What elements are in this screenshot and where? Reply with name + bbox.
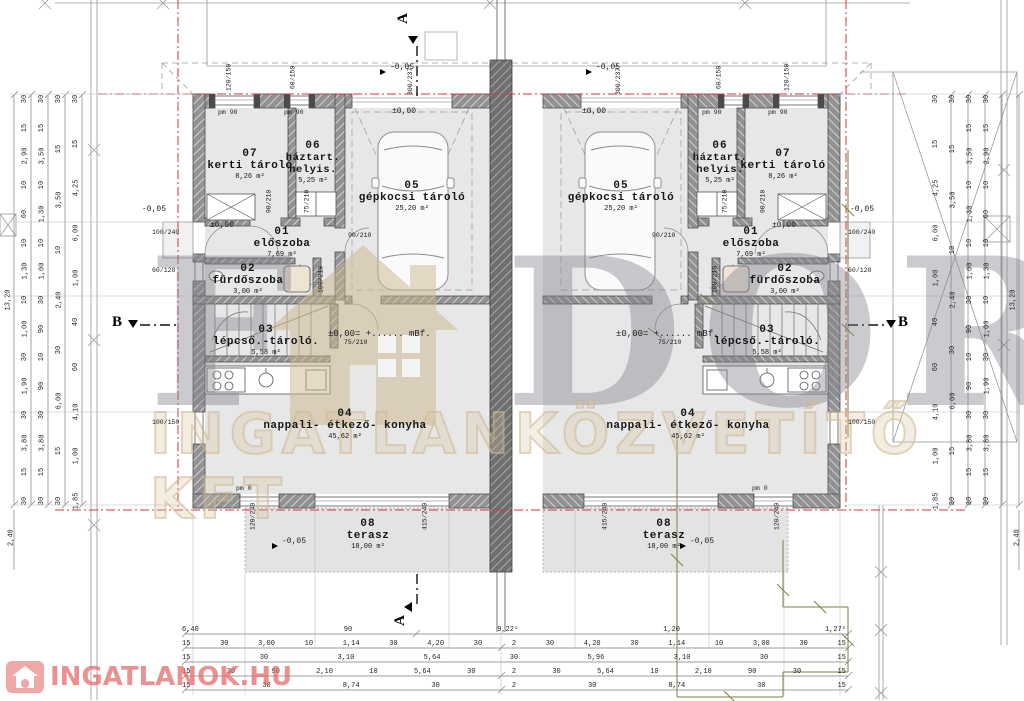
dimension-value: 30 bbox=[966, 411, 974, 419]
level-zero-garage-left: ±0,00 bbox=[392, 108, 416, 116]
dimension-value: 2,10 bbox=[695, 668, 712, 676]
dimension-value: 3,50 bbox=[949, 191, 957, 208]
level-minus5-terrace-left: -0,05 bbox=[282, 538, 306, 546]
dimension-value: 8,74 bbox=[668, 682, 685, 690]
dimension-value: 2 bbox=[512, 682, 516, 690]
window-size-label: 100/150 bbox=[848, 420, 875, 427]
garage-door-size-label: 300/237⁵ bbox=[616, 64, 623, 95]
dimension-value: 1,27⁵ bbox=[825, 626, 846, 634]
door-size-label: 90/210 bbox=[348, 233, 371, 240]
level-zero-garage-right: ±0,00 bbox=[582, 108, 606, 116]
dimension-value: 90 bbox=[38, 382, 46, 390]
dimension-value: 1,00 bbox=[983, 320, 991, 337]
dimension-value: 4,10 bbox=[72, 403, 80, 420]
dimension-value: 10 bbox=[21, 181, 29, 189]
dimension-value: 1,85 bbox=[72, 493, 80, 510]
dimension-value: 15 bbox=[837, 640, 845, 648]
window-size-label: 120/150 bbox=[784, 64, 791, 91]
ingatlanok-logo-text: INGATLANOK.HU bbox=[50, 662, 292, 692]
section-b-arrow-left-icon bbox=[128, 320, 138, 328]
dimension-value: 3,10 bbox=[674, 654, 691, 662]
dimension-value: 4,10 bbox=[932, 403, 940, 420]
dimension-value: 60 bbox=[21, 210, 29, 218]
terrace-door-size-label: 120/240 bbox=[774, 503, 781, 530]
dimension-value: 10 bbox=[715, 640, 723, 648]
room-label-01-left: 01 előszoba 7,69 m² bbox=[254, 226, 311, 259]
dimension-value: 1,30 bbox=[966, 205, 974, 222]
dimension-value: 3,00 bbox=[753, 640, 770, 648]
dimension-value: 8,74 bbox=[343, 682, 360, 690]
dimension-value: 30 bbox=[38, 95, 46, 103]
dimension-value: 6,00 bbox=[932, 225, 940, 242]
dimension-value: 2,40 bbox=[949, 292, 957, 309]
dimension-value: 90 bbox=[966, 382, 974, 390]
dimension-value: 40 bbox=[932, 318, 940, 326]
dimension-value: 30 bbox=[72, 95, 80, 103]
dimension-value: 30 bbox=[55, 346, 63, 354]
level-flag-icon bbox=[680, 543, 686, 549]
dimension-value: 10 bbox=[369, 668, 377, 676]
dimension-value: 15 bbox=[55, 145, 63, 153]
dimension-value: 9,22¹ bbox=[497, 626, 518, 634]
dimension-value: 15 bbox=[21, 124, 29, 132]
room-label-08-left: 08 terasz 18,00 m² bbox=[347, 518, 390, 551]
window-parapet-label: pm 90 bbox=[284, 110, 304, 117]
dimension-value: 30 bbox=[983, 95, 991, 103]
dimension-value: 15 bbox=[182, 640, 190, 648]
dimension-value: 1,14 bbox=[668, 640, 685, 648]
garage-door-size-label: 300/237⁵ bbox=[408, 64, 415, 95]
dimension-value: 1,00 bbox=[72, 448, 80, 465]
dimension-value: 30 bbox=[949, 497, 957, 505]
dimension-value: 30 bbox=[431, 682, 439, 690]
door-size-label: 100/210 bbox=[318, 266, 325, 293]
section-a-letter-top: A bbox=[395, 13, 412, 24]
dimension-value: 3,80 bbox=[983, 435, 991, 452]
dimension-value: 30 bbox=[793, 668, 801, 676]
room-label-04-right: 04 nappali- étkező- konyha 45,62 m² bbox=[606, 408, 769, 441]
dimension-value: 30 bbox=[757, 682, 765, 690]
window-size-label: 100/150 bbox=[152, 420, 179, 427]
dimension-value: 30 bbox=[55, 95, 63, 103]
dimension-value: 1,30 bbox=[38, 205, 46, 222]
dimension-value: 2,90 bbox=[21, 148, 29, 165]
window-parapet-label: pm 90 bbox=[218, 110, 238, 117]
dimension-chain-right-2: 30152,901060101,30101,00301,90303,801530 bbox=[981, 95, 993, 505]
dimension-value: 30 bbox=[966, 95, 974, 103]
dimension-corner-right: 2,40 bbox=[1015, 529, 1022, 546]
level-flag-icon bbox=[586, 69, 592, 75]
dimension-chain-bottom-2: 15303,00101,14304,20302304,20301,14103,0… bbox=[182, 640, 846, 648]
dimension-value: 5,64 bbox=[597, 668, 614, 676]
terrace-sill-label: pm 0 bbox=[236, 486, 252, 493]
door-size-label: 100/240 bbox=[848, 230, 875, 237]
section-b-letter-left: B bbox=[112, 314, 122, 331]
dimension-value: 15 bbox=[838, 654, 846, 662]
dimension-chain-right-3: 30153,50101,30101,0030901090303,801530 bbox=[964, 95, 976, 505]
ingatlanok-logo[interactable]: INGATLANOK.HU bbox=[6, 661, 292, 693]
window-size-label: 60/120 bbox=[848, 268, 871, 275]
dimension-value: 15 bbox=[949, 145, 957, 153]
dimension-value: 30 bbox=[38, 296, 46, 304]
dimension-value: 30 bbox=[983, 353, 991, 361]
dimension-value: 10 bbox=[983, 238, 991, 246]
dimension-value: 6,00 bbox=[949, 392, 957, 409]
dimension-value: 90 bbox=[966, 324, 974, 332]
room-label-06-right: 06 háztart. helyis. 5,25 m² bbox=[684, 140, 756, 185]
terrace-door-size-label: 415/240 bbox=[602, 503, 609, 530]
window-parapet-label: pm 90 bbox=[702, 110, 722, 117]
dimension-value: 1,00 bbox=[966, 263, 974, 280]
dimension-value: 1,00 bbox=[72, 269, 80, 286]
dimension-value: 30 bbox=[21, 411, 29, 419]
window-parapet-label: pm 90 bbox=[768, 110, 788, 117]
dimension-value: 3,00 bbox=[258, 640, 275, 648]
section-a-arrow-top-icon bbox=[408, 36, 418, 44]
dimension-value: 40 bbox=[72, 318, 80, 326]
dimension-value: 6,40 bbox=[182, 626, 199, 634]
dimension-value: 4,20 bbox=[584, 640, 601, 648]
dimension-value: 1,90 bbox=[983, 378, 991, 395]
dimension-chain-left-4: 30153,50102,40306,001530 bbox=[53, 95, 65, 505]
dimension-chain-left-5: 30154,256,001,0040604,101,001,85 bbox=[70, 95, 82, 505]
dimension-value: 90 bbox=[748, 668, 756, 676]
dimension-value: 30 bbox=[38, 497, 46, 505]
window-size-label: 60/150 bbox=[716, 66, 723, 89]
dimension-value: 30 bbox=[966, 497, 974, 505]
level-zero-hall-left: ±0,00 bbox=[210, 222, 234, 230]
window-size-label: 60/120 bbox=[152, 268, 175, 275]
dimension-chain-left-3: 30153,50101,30101,0030901090303,801530 bbox=[36, 95, 48, 505]
dimension-value: 10 bbox=[966, 181, 974, 189]
dimension-value: 30 bbox=[510, 654, 518, 662]
dimension-value: 1,00 bbox=[21, 320, 29, 337]
dimension-value: 10 bbox=[38, 353, 46, 361]
door-size-label: 75/210 bbox=[304, 190, 311, 213]
dimension-value: 3,50 bbox=[966, 148, 974, 165]
dimension-value: 15 bbox=[983, 468, 991, 476]
dimension-value: 1,20 bbox=[663, 626, 680, 634]
floor-plan-canvas: F DOR INGATLANKÖZVETÍTŐ KFT 07 kerti tár… bbox=[0, 0, 1024, 701]
room-label-03-left: 03 lépcső.-tároló. 5,58 m² bbox=[213, 324, 320, 357]
room-label-04-left: 04 nappali- étkező- konyha 45,62 m² bbox=[263, 408, 426, 441]
room-label-01-right: 01 előszoba 7,69 m² bbox=[723, 226, 780, 259]
section-a-arrow-bottom-icon bbox=[404, 602, 412, 612]
dimension-value: 30 bbox=[220, 640, 228, 648]
dimension-value: 30 bbox=[21, 95, 29, 103]
dimension-value: 30 bbox=[546, 640, 554, 648]
level-minus5-terrace-right: -0,05 bbox=[690, 538, 714, 546]
dimension-chain-left-2: 30152,901060101,30101,00301,90303,801530 bbox=[19, 95, 31, 505]
dimension-value: 60 bbox=[72, 363, 80, 371]
dimension-value: 30 bbox=[966, 296, 974, 304]
dimension-value: 30 bbox=[38, 411, 46, 419]
dimension-value: 4,25 bbox=[72, 180, 80, 197]
dimension-value: 5,64 bbox=[414, 668, 431, 676]
dimension-value: 2,10 bbox=[316, 668, 333, 676]
dimension-value: 30 bbox=[760, 654, 768, 662]
dimension-value: 30 bbox=[949, 95, 957, 103]
dimension-chain-right-1: 13,20 bbox=[1007, 95, 1019, 505]
dimension-value: 10 bbox=[983, 296, 991, 304]
level-zero-hall-right: ±0,00 bbox=[772, 222, 796, 230]
dimension-value: 5,96 bbox=[587, 654, 604, 662]
dimension-value: 30 bbox=[949, 346, 957, 354]
door-size-label: 100/240 bbox=[152, 230, 179, 237]
dimension-chain-left-1: 13,20 bbox=[2, 95, 14, 505]
dimension-value: 1,90 bbox=[21, 378, 29, 395]
dimension-value: 1,00 bbox=[932, 448, 940, 465]
dimension-value: 15 bbox=[38, 124, 46, 132]
dimension-value: 2 bbox=[512, 640, 516, 648]
level-flag-icon bbox=[380, 69, 386, 75]
dimension-value: 10 bbox=[966, 238, 974, 246]
dimension-value: 60 bbox=[932, 363, 940, 371]
dimension-value: 3,80 bbox=[21, 435, 29, 452]
dimension-chain-right-4: 30153,50102,40306,001530 bbox=[947, 95, 959, 505]
dimension-value: 10 bbox=[21, 238, 29, 246]
dimension-value: 1,00 bbox=[38, 263, 46, 280]
room-label-06-left: 06 háztart. helyis. 5,25 m² bbox=[277, 140, 349, 185]
dimension-value: 5,64 bbox=[424, 654, 441, 662]
dimension-value: 13,20 bbox=[4, 289, 12, 310]
dimension-value: 10 bbox=[38, 181, 46, 189]
door-size-label: 75/210 bbox=[658, 340, 681, 347]
dimension-value: 15 bbox=[837, 668, 845, 676]
dimension-value: 15 bbox=[949, 447, 957, 455]
dimension-corner-left: 2,40 bbox=[9, 529, 16, 546]
dimension-value: 15 bbox=[837, 682, 845, 690]
dimension-value: 15 bbox=[983, 124, 991, 132]
room-label-05-right: 05 gépkocsi tároló 25,20 m² bbox=[568, 180, 675, 213]
dimension-value: 3,80 bbox=[966, 435, 974, 452]
dimension-value: 3,50 bbox=[55, 191, 63, 208]
dimension-value: 10 bbox=[305, 640, 313, 648]
level-minus5-side-right: -0,05 bbox=[850, 206, 874, 214]
dimension-value: 3,80 bbox=[38, 435, 46, 452]
dimension-chain-bottom-1: 6,40909,22¹1,201,27⁵ bbox=[182, 626, 846, 634]
dimension-value: 15 bbox=[966, 124, 974, 132]
dimension-value: 15 bbox=[966, 468, 974, 476]
section-b-letter-right: B bbox=[898, 314, 908, 331]
door-size-label: 90/210 bbox=[652, 233, 675, 240]
dimension-value: 4,25 bbox=[932, 180, 940, 197]
dimension-value: 10 bbox=[949, 246, 957, 254]
dimension-value: 1,85 bbox=[932, 493, 940, 510]
dimension-value: 30 bbox=[21, 497, 29, 505]
dimension-value: 2,40 bbox=[55, 292, 63, 309]
dimension-value: 30 bbox=[474, 640, 482, 648]
terrace-sill-label: pm 0 bbox=[752, 486, 768, 493]
door-size-label: 75/210 bbox=[722, 190, 729, 213]
door-size-label: 90/210 bbox=[266, 190, 273, 213]
room-label-05-left: 05 gépkocsi tároló 25,20 m² bbox=[359, 180, 466, 213]
dimension-value: 30 bbox=[55, 497, 63, 505]
dimension-value: 90 bbox=[38, 324, 46, 332]
door-size-label: 90/210 bbox=[760, 190, 767, 213]
dimension-value: 10 bbox=[966, 353, 974, 361]
dimension-value: 6,00 bbox=[72, 225, 80, 242]
dimension-value: 60 bbox=[983, 210, 991, 218]
dimension-value: 15 bbox=[932, 139, 940, 147]
dimension-value: 10 bbox=[55, 246, 63, 254]
dimension-value: 2 bbox=[512, 668, 516, 676]
dimension-value: 1,30 bbox=[983, 263, 991, 280]
room-label-02-right: 02 fürdőszoba 3,00 m² bbox=[749, 263, 820, 296]
dimension-value: 30 bbox=[552, 668, 560, 676]
dimension-value: 15 bbox=[38, 468, 46, 476]
dimension-value: 6,00 bbox=[55, 392, 63, 409]
level-minus5-side-left: -0,05 bbox=[142, 206, 166, 214]
room-label-02-left: 02 fürdőszoba 3,00 m² bbox=[212, 263, 283, 296]
dimension-value: 30 bbox=[467, 668, 475, 676]
dimension-value: 3,10 bbox=[337, 654, 354, 662]
dimension-value: 30 bbox=[983, 411, 991, 419]
ingatlanok-house-icon bbox=[6, 661, 44, 693]
window-size-label: 60/150 bbox=[290, 66, 297, 89]
dimension-value: 30 bbox=[630, 640, 638, 648]
room-label-03-right: 03 lépcső.-tároló. 5,58 m² bbox=[714, 324, 821, 357]
room-label-08-right: 08 terasz 18,00 m² bbox=[643, 518, 686, 551]
dimension-value: 1,14 bbox=[343, 640, 360, 648]
section-b-arrow-right-icon bbox=[886, 320, 896, 328]
dimension-value: 15 bbox=[55, 447, 63, 455]
dimension-value: 30 bbox=[588, 682, 596, 690]
dimension-value: 13,20 bbox=[1009, 289, 1017, 310]
dimension-value: 2,90 bbox=[983, 148, 991, 165]
dimension-value: 30 bbox=[389, 640, 397, 648]
dimension-value: 30 bbox=[21, 353, 29, 361]
door-size-label: 100/210 bbox=[712, 266, 719, 293]
dimension-value: 15 bbox=[21, 468, 29, 476]
dimension-value: 1,00 bbox=[932, 269, 940, 286]
terrace-door-size-label: 120/240 bbox=[250, 503, 257, 530]
dimension-value: 15 bbox=[72, 139, 80, 147]
dimension-value: 10 bbox=[650, 668, 658, 676]
section-a-letter-bottom: A bbox=[392, 615, 409, 626]
dimension-value: 3,50 bbox=[38, 148, 46, 165]
dimension-value: 1,30 bbox=[21, 263, 29, 280]
dimension-value: 10 bbox=[38, 238, 46, 246]
dimension-value: 10 bbox=[983, 181, 991, 189]
level-flag-icon bbox=[272, 543, 278, 549]
terrace-door-size-label: 415/240 bbox=[422, 503, 429, 530]
dimension-value: 30 bbox=[799, 640, 807, 648]
dimension-value: 90 bbox=[344, 626, 352, 634]
door-size-label: 75/210 bbox=[344, 340, 367, 347]
dimension-chain-right-5: 30154,256,001,0040604,101,001,85 bbox=[930, 95, 942, 505]
window-size-label: 120/150 bbox=[226, 64, 233, 91]
dimension-value: 30 bbox=[932, 95, 940, 103]
dimension-value: 30 bbox=[983, 497, 991, 505]
dimension-value: 10 bbox=[21, 296, 29, 304]
dimension-value: 4,20 bbox=[427, 640, 444, 648]
